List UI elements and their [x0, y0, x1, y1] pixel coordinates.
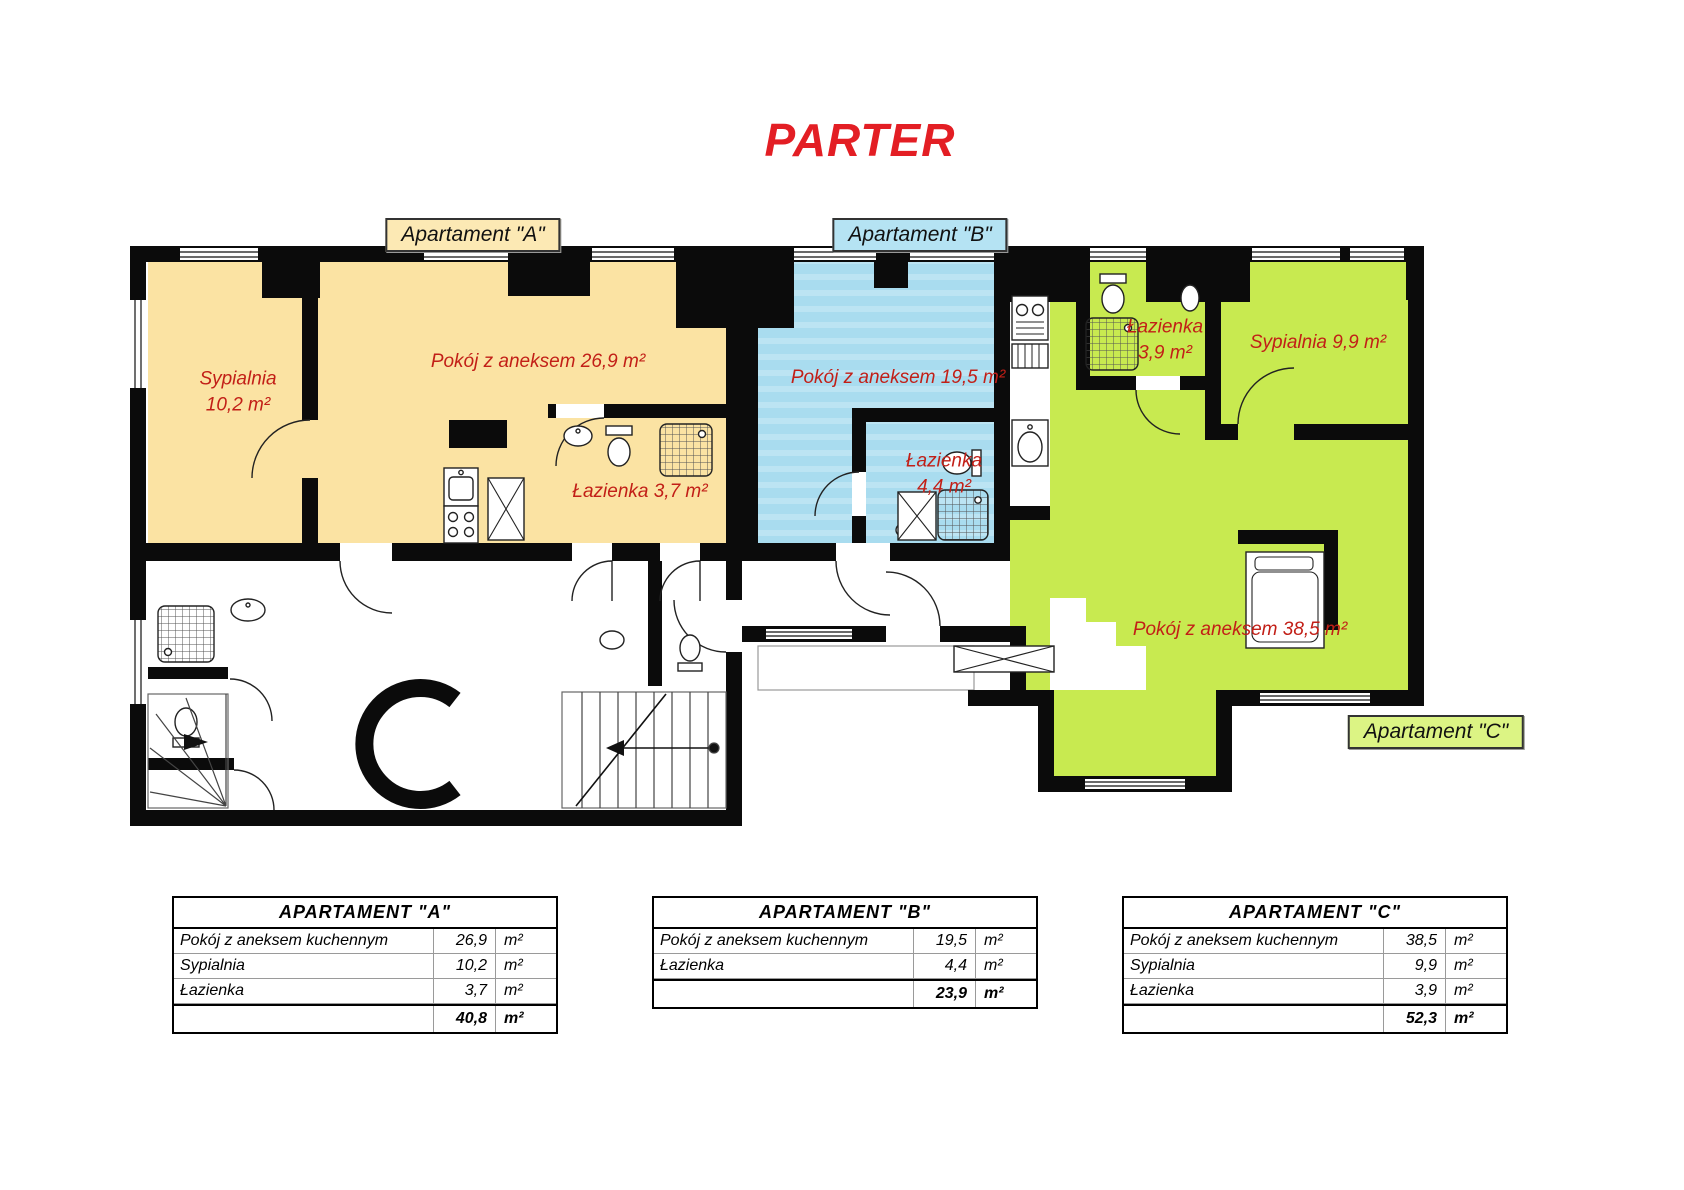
floorplan-page: PARTER Apartament "A" Apartament "B" Apa… — [0, 0, 1684, 1190]
table-row: Pokój z aneksem kuchennym 26,9 m² — [174, 929, 556, 954]
curved-wall — [364, 688, 455, 800]
area-unit-cell: m² — [1446, 929, 1502, 953]
area-value-cell: 3,7 — [434, 979, 496, 1003]
room-label-b-lazienka: Łazienka 4,4 m² — [906, 448, 982, 499]
room-name-cell: Pokój z aneksem kuchennym — [654, 929, 914, 953]
table-row: Pokój z aneksem kuchennym 19,5 m² — [654, 929, 1036, 954]
area-value-cell: 26,9 — [434, 929, 496, 953]
room-name-cell: Łazienka — [174, 979, 434, 1003]
table-row: Łazienka 3,9 m² — [1124, 979, 1506, 1004]
room-name-cell: Sypialnia — [174, 954, 434, 978]
table-apartment-c: APARTAMENT "C" Pokój z aneksem kuchennym… — [1122, 896, 1508, 1034]
area-unit-cell: m² — [496, 929, 552, 953]
table-c-header: APARTAMENT "C" — [1124, 898, 1506, 929]
area-unit-cell: m² — [1446, 979, 1502, 1003]
room-label-c-sypialnia: Sypialnia 9,9 m² — [1250, 330, 1386, 356]
table-total-row: 52,3 m² — [1124, 1004, 1506, 1032]
table-apartment-a: APARTAMENT "A" Pokój z aneksem kuchennym… — [172, 896, 558, 1034]
area-value-cell: 19,5 — [914, 929, 976, 953]
page-title: PARTER — [765, 113, 956, 167]
apartment-a-label: Apartament "A" — [385, 218, 560, 252]
table-row: Sypialnia 9,9 m² — [1124, 954, 1506, 979]
area-value-cell: 9,9 — [1384, 954, 1446, 978]
room-name-cell: Pokój z aneksem kuchennym — [174, 929, 434, 953]
area-unit-cell: m² — [496, 979, 552, 1003]
room-label-a-sypialnia: Sypialnia 10,2 m² — [199, 366, 276, 417]
area-unit-cell: m² — [496, 954, 552, 978]
total-unit-cell: m² — [1446, 1006, 1502, 1032]
area-value-cell: 38,5 — [1384, 929, 1446, 953]
room-name: Łazienka — [906, 448, 982, 474]
table-b-header: APARTAMENT "B" — [654, 898, 1036, 929]
room-name-cell: Łazienka — [654, 954, 914, 978]
area-unit-cell: m² — [1446, 954, 1502, 978]
table-total-row: 23,9 m² — [654, 979, 1036, 1007]
apartment-b-label: Apartament "B" — [832, 218, 1007, 252]
room-name-cell: Łazienka — [1124, 979, 1384, 1003]
room-name: Łazienka — [1127, 314, 1203, 340]
table-row: Pokój z aneksem kuchennym 38,5 m² — [1124, 929, 1506, 954]
empty-cell — [1124, 1006, 1384, 1032]
total-value-cell: 52,3 — [1384, 1006, 1446, 1032]
table-a-header: APARTAMENT "A" — [174, 898, 556, 929]
total-unit-cell: m² — [496, 1006, 552, 1032]
room-name-cell: Sypialnia — [1124, 954, 1384, 978]
room-label-a-lazienka: Łazienka 3,7 m² — [572, 479, 707, 505]
room-area: 10,2 m² — [199, 392, 276, 418]
room-label-a-pokoj: Pokój z aneksem 26,9 m² — [431, 349, 645, 375]
room-label-b-pokoj: Pokój z aneksem 19,5 m² — [791, 365, 1005, 391]
area-value-cell: 10,2 — [434, 954, 496, 978]
area-unit-cell: m² — [976, 954, 1032, 978]
total-unit-cell: m² — [976, 981, 1032, 1007]
total-value-cell: 23,9 — [914, 981, 976, 1007]
room-area: 4,4 m² — [906, 474, 982, 500]
total-value-cell: 40,8 — [434, 1006, 496, 1032]
table-row: Łazienka 3,7 m² — [174, 979, 556, 1004]
room-label-c-lazienka: Łazienka 3,9 m² — [1127, 314, 1203, 365]
table-row: Łazienka 4,4 m² — [654, 954, 1036, 979]
table-apartment-b: APARTAMENT "B" Pokój z aneksem kuchennym… — [652, 896, 1038, 1009]
empty-cell — [654, 981, 914, 1007]
table-row: Sypialnia 10,2 m² — [174, 954, 556, 979]
area-value-cell: 3,9 — [1384, 979, 1446, 1003]
room-name: Sypialnia — [199, 366, 276, 392]
room-name-cell: Pokój z aneksem kuchennym — [1124, 929, 1384, 953]
area-unit-cell: m² — [976, 929, 1032, 953]
apartment-c-label: Apartament "C" — [1348, 715, 1524, 749]
empty-cell — [174, 1006, 434, 1032]
table-total-row: 40,8 m² — [174, 1004, 556, 1032]
room-area: 3,9 m² — [1127, 340, 1203, 366]
area-value-cell: 4,4 — [914, 954, 976, 978]
room-label-c-pokoj: Pokój z aneksem 38,5 m² — [1133, 617, 1347, 643]
